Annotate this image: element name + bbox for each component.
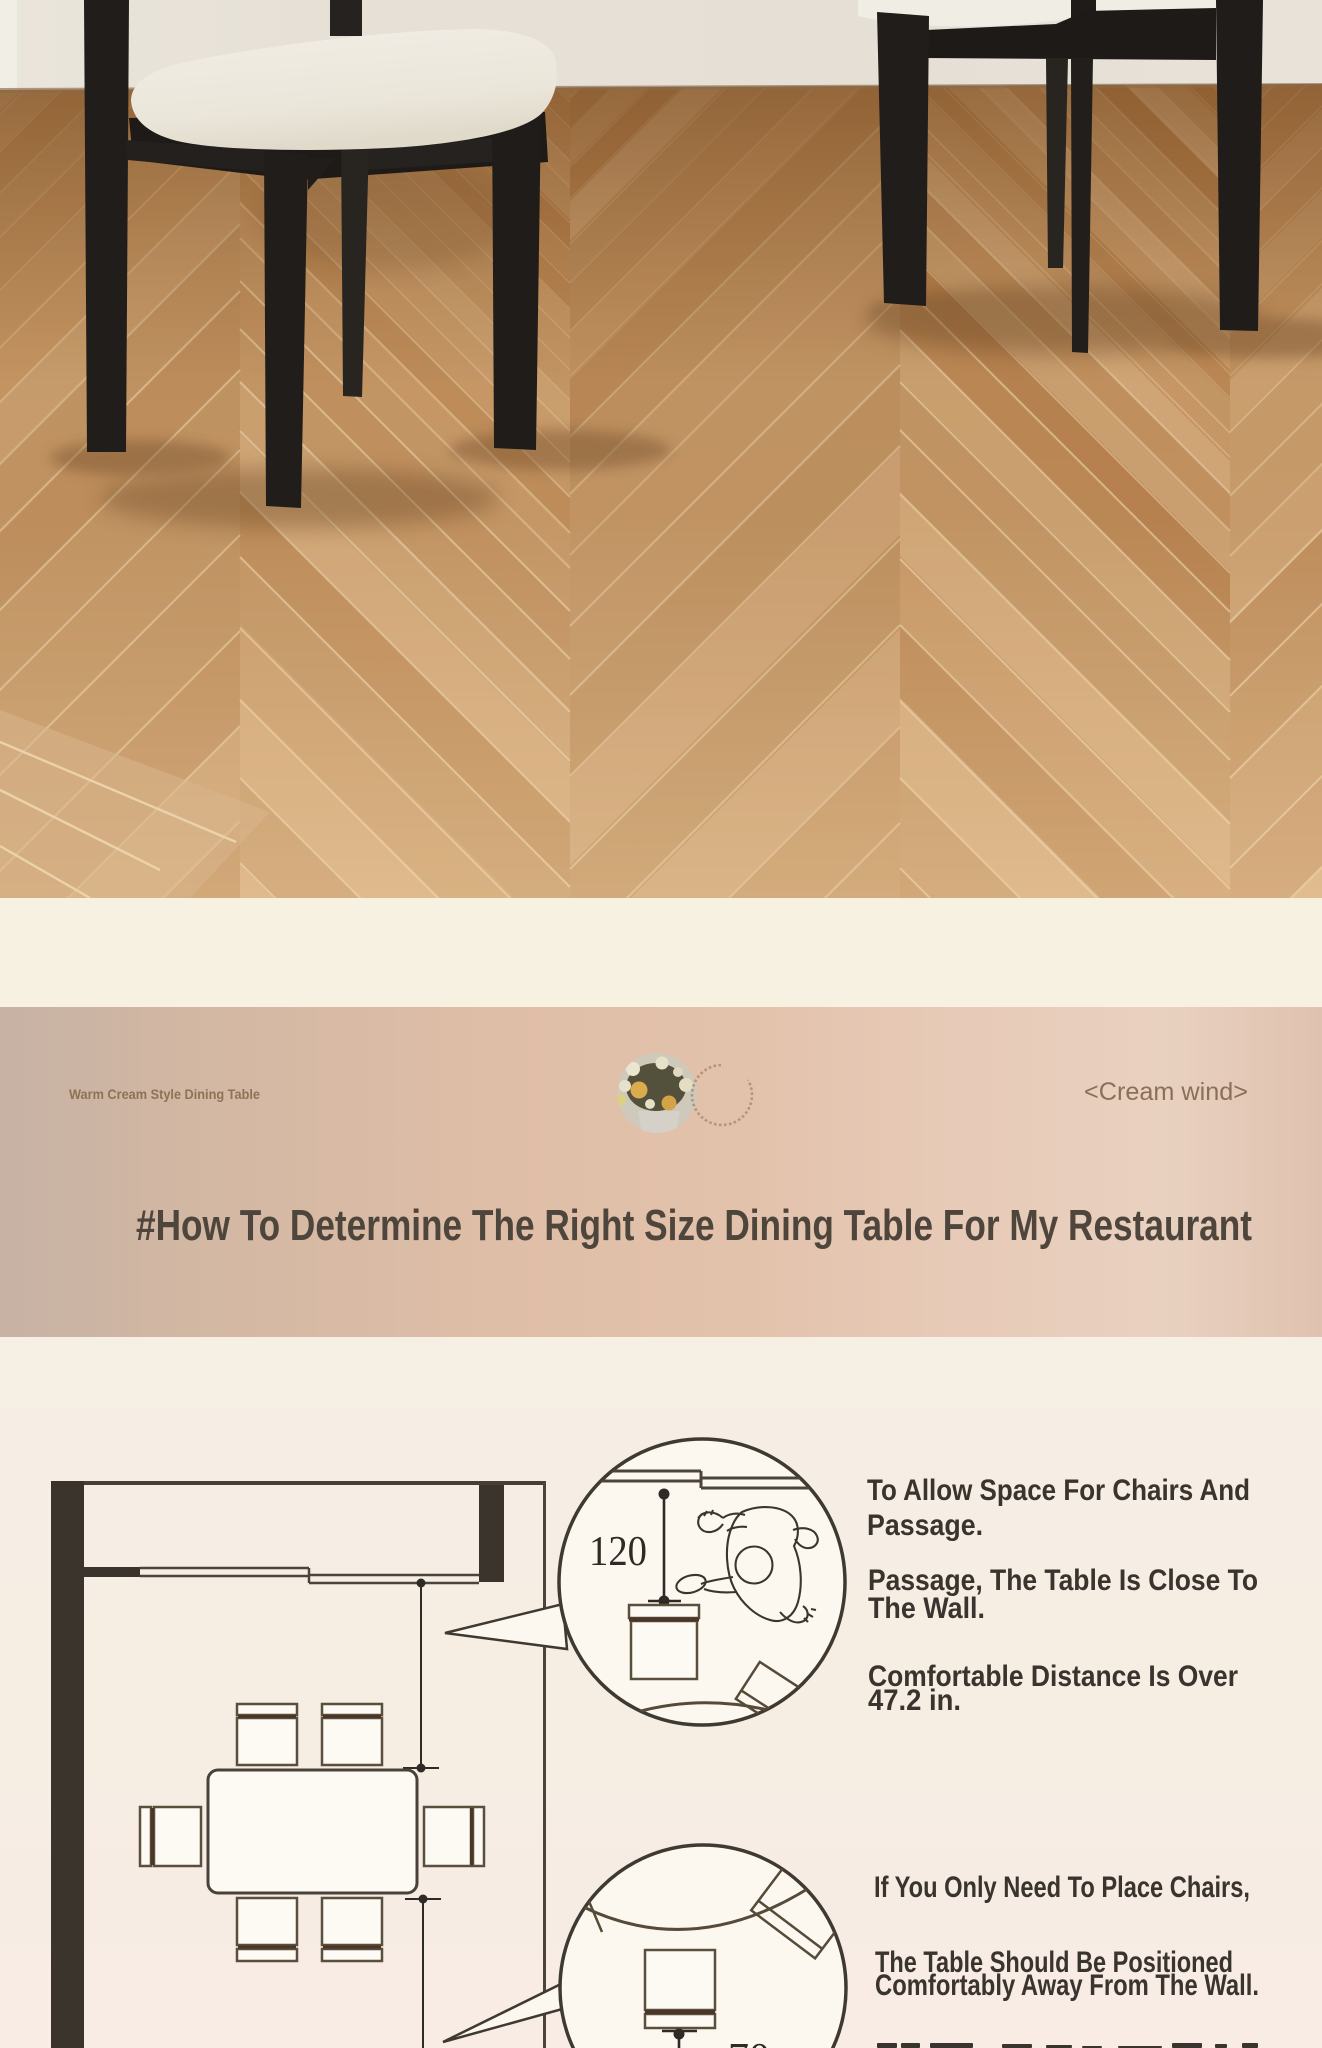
svg-text:70: 70 (728, 2036, 770, 2048)
svg-text:120: 120 (589, 1529, 647, 1575)
svg-text:Warm Cream Style Dining Table: Warm Cream Style Dining Table (69, 1086, 260, 1102)
svg-text:<Cream wind>: <Cream wind> (1084, 1078, 1248, 1106)
svg-text:Comfortably Away From The Wall: Comfortably Away From The Wall. (875, 1969, 1259, 2002)
svg-text:#How To Determine The Right Si: #How To Determine The Right Size Dining … (136, 1201, 1252, 1250)
svg-text:To Allow Space For Chairs And: To Allow Space For Chairs And (867, 1474, 1250, 1507)
svg-text:If You Only Need To Place Chai: If You Only Need To Place Chairs, (874, 1871, 1250, 1904)
svg-text:The Wall.: The Wall. (868, 1592, 985, 1625)
svg-text:47.2 in.: 47.2 in. (868, 1684, 961, 1717)
svg-text:Passage.: Passage. (867, 1509, 983, 1542)
